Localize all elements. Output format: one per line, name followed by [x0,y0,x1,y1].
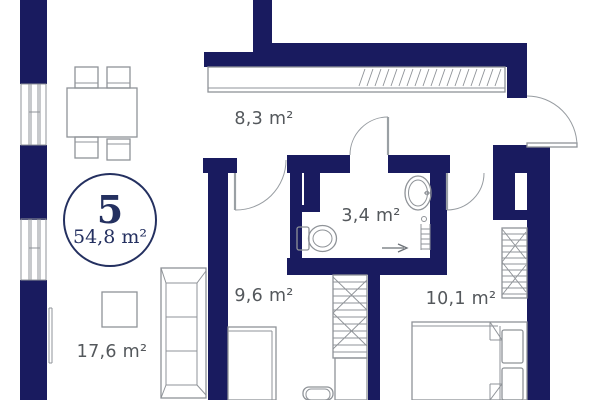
room-label-hallway: 8,3 m² [234,109,293,129]
door-bedroom-large [447,173,484,210]
window-bottom [21,219,46,280]
armchair-bedroom-small [303,387,333,400]
door-bedroom-small [235,160,286,210]
room-label-bathroom: 3,4 m² [341,206,400,226]
room-label-bedroom-small: 9,6 m² [234,286,293,306]
double-bed [412,322,527,400]
wardrobe-bedroom-small [333,275,367,400]
radiator [49,308,52,363]
apartment-total-area: 54,8 m² [73,228,147,248]
apartment-badge: 5 54,8 m² [63,173,157,267]
floor-plan: 8,3 m² 3,4 m² 9,6 m² 10,1 m² 17,6 m² 5 5… [0,0,600,400]
sink [405,176,431,210]
coffee-table [102,292,137,327]
bed-bedroom-small [228,327,276,400]
door-bathroom [350,117,388,155]
hallway-closet [208,67,505,92]
window-top [21,84,46,145]
dining-table [67,88,137,137]
direction-arrow [382,244,407,252]
entry-door [527,96,577,147]
room-label-bedroom-large: 10,1 m² [426,289,497,309]
toilet [297,226,337,252]
towel-ladder [421,217,430,251]
sofa [161,268,206,398]
wardrobe-bedroom-large [502,228,527,298]
apartment-number: 5 [97,192,123,228]
room-label-living-room: 17,6 m² [77,342,148,362]
